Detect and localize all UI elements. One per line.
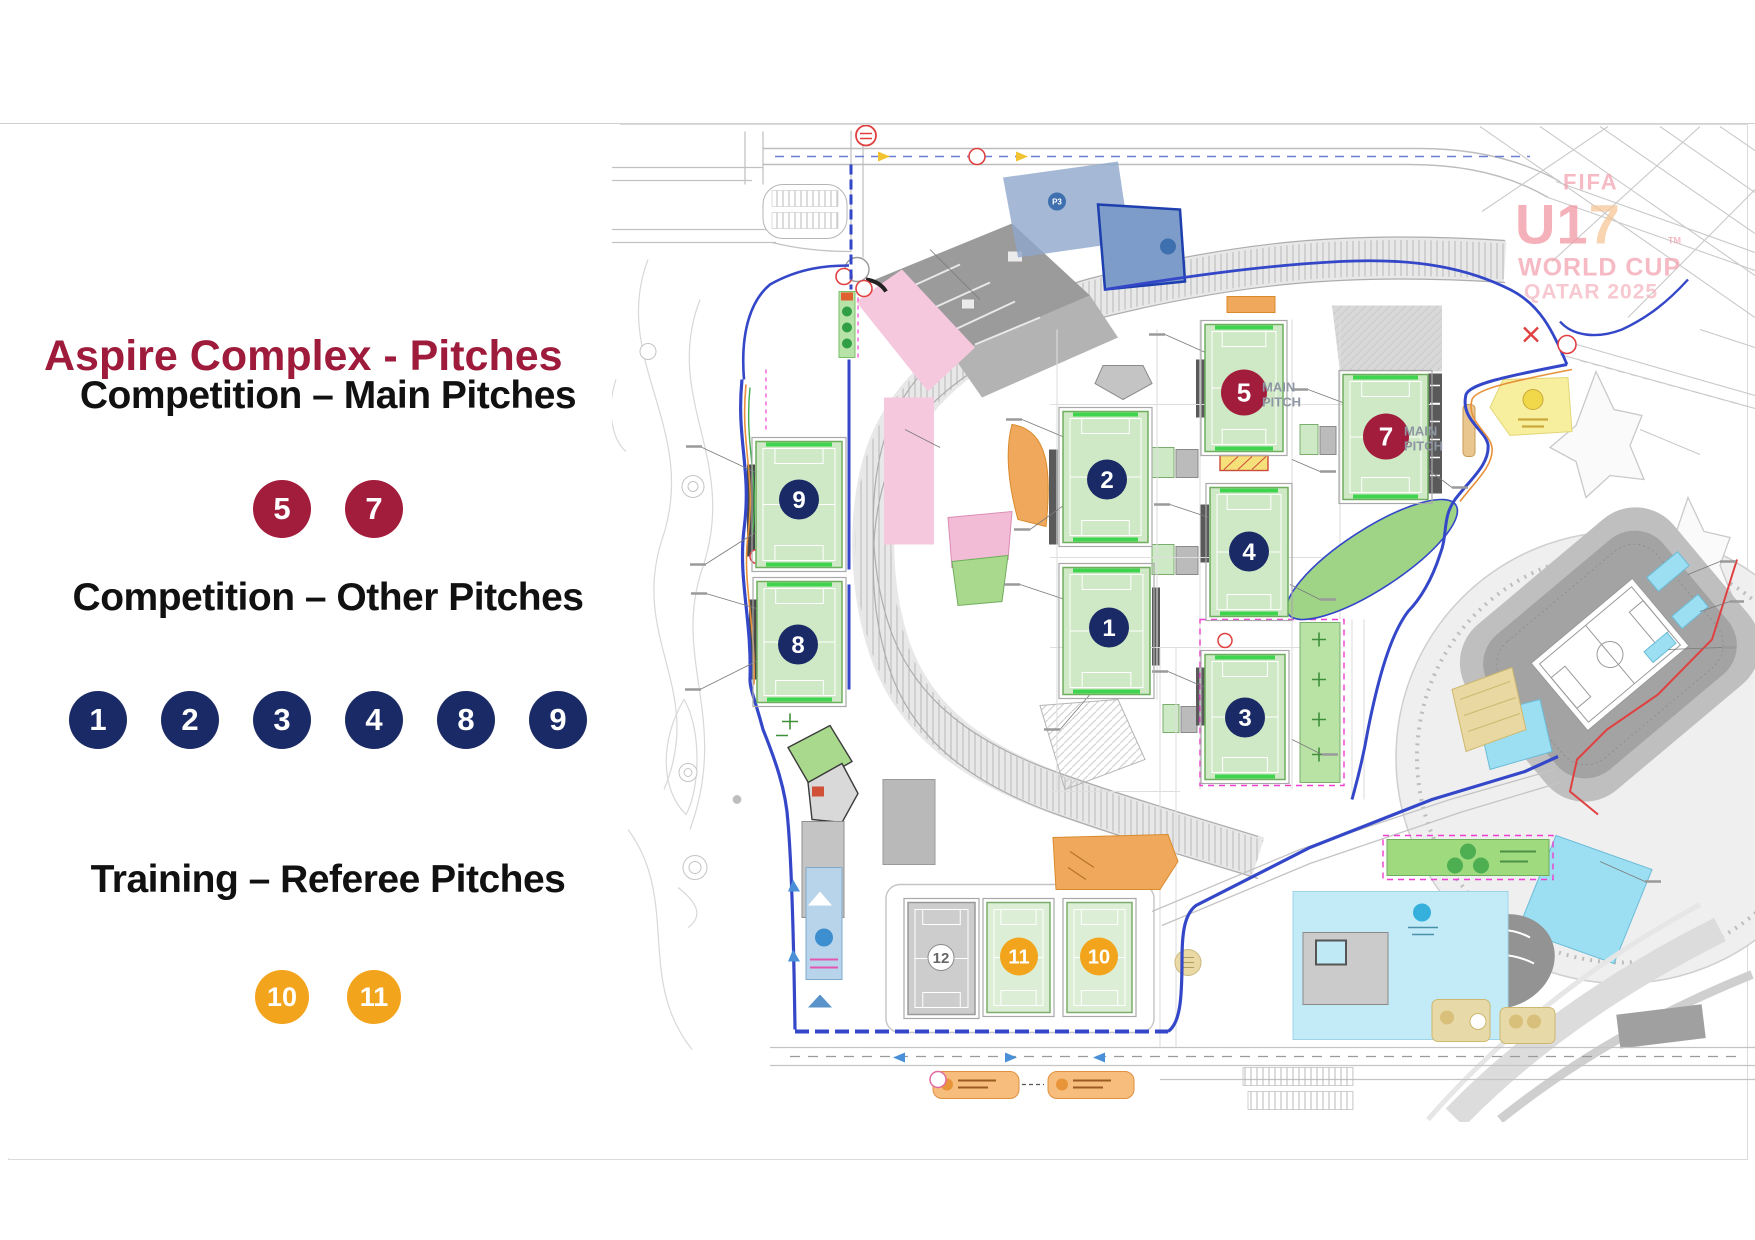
south-road — [770, 1048, 1755, 1110]
p3-label: P3 — [1052, 198, 1062, 207]
road-marker-icon — [930, 1072, 946, 1088]
pitch-1: 1 — [1059, 564, 1154, 699]
pitch-3: 3 — [1201, 651, 1289, 784]
pitch-number-3: 3 — [1238, 705, 1251, 732]
svg-text:TM: TM — [1668, 236, 1681, 246]
svg-text:FIFA: FIFA — [1563, 170, 1619, 195]
slide: { "legend": { "title": "Aspire Complex -… — [0, 0, 1755, 1240]
pitch-11: 11 — [983, 899, 1054, 1017]
north-road — [763, 149, 1560, 198]
info-icon — [815, 929, 833, 947]
legend-badge-4: 4 — [345, 691, 403, 749]
legend-badge-10: 10 — [255, 970, 309, 1024]
svg-text:PITCH: PITCH — [1262, 395, 1301, 410]
pitch-12: 12 — [904, 899, 979, 1019]
road-arrow-icon — [1093, 1053, 1105, 1063]
gray-building — [883, 780, 935, 865]
legend-badge-5: 5 — [253, 480, 311, 538]
badge-row-main: 57 — [8, 480, 648, 538]
svg-text:MAIN: MAIN — [1262, 380, 1295, 395]
section-label-main-pitches: Competition – Main Pitches — [8, 374, 648, 418]
pitch-9: 9 — [752, 438, 846, 572]
pitch-number-5: 5 — [1237, 378, 1251, 408]
road-arrow-icon — [1016, 152, 1028, 162]
pitch-number-9: 9 — [792, 487, 805, 514]
svg-text:WORLD CUP: WORLD CUP — [1518, 254, 1681, 282]
pitch-number-4: 4 — [1242, 539, 1256, 566]
section-label-other-pitches: Competition – Other Pitches — [8, 576, 648, 620]
road-arrow-icon — [878, 152, 890, 162]
south-building — [1616, 1004, 1706, 1048]
road-arrow-icon — [1005, 1053, 1017, 1063]
legend-badge-9: 9 — [529, 691, 587, 749]
pitch-number-1: 1 — [1102, 615, 1115, 642]
pitch-number-11: 11 — [1008, 947, 1029, 969]
plaza-icon — [1523, 390, 1543, 410]
section-label-referee-pitches: Training – Referee Pitches — [8, 858, 648, 902]
badge-row-training: 1011 — [8, 970, 648, 1024]
legend-badge-1: 1 — [69, 691, 127, 749]
road-marker-icon — [969, 149, 985, 165]
pitch-number-8: 8 — [791, 632, 804, 659]
parking-icon — [1160, 239, 1176, 255]
landscape-west — [612, 260, 713, 1050]
pitch-2: 2 — [1059, 408, 1152, 547]
parking-lot-northwest — [763, 185, 847, 239]
svg-text:MAIN: MAIN — [1404, 424, 1437, 439]
pitch-number-2: 2 — [1100, 467, 1113, 494]
legend-badge-8: 8 — [437, 691, 495, 749]
legend-badge-7: 7 — [345, 480, 403, 538]
competitor-strip — [1383, 836, 1553, 880]
svg-text:QATAR 2025: QATAR 2025 — [1524, 281, 1658, 304]
legend-badge-2: 2 — [161, 691, 219, 749]
legend-badge-3: 3 — [253, 691, 311, 749]
metro-icon — [1413, 904, 1431, 922]
pitch-number-7: 7 — [1379, 422, 1393, 452]
pitch-10: 10 — [1063, 899, 1136, 1017]
pitch-number-12: 12 — [933, 950, 950, 967]
pitch-number-10: 10 — [1088, 947, 1110, 969]
pitch-8: 8 — [753, 578, 846, 707]
legend-badge-11: 11 — [347, 970, 401, 1024]
legend-panel: Aspire Complex - Pitches Competition – M… — [8, 124, 620, 1158]
yellow-plaza — [1490, 378, 1572, 436]
fifa-watermark: FIFA U17 TM WORLD CUP QATAR 2025 — [1515, 170, 1681, 304]
tpc-marker-icon — [856, 126, 876, 146]
badge-row-other: 123489 — [8, 691, 648, 749]
svg-text:PITCH: PITCH — [1404, 439, 1443, 454]
site-map: P3 — [612, 125, 1755, 1122]
u17-logo: U17 — [1515, 193, 1621, 256]
pitch-4: 4 — [1206, 484, 1292, 621]
road-arrow-icon — [893, 1053, 905, 1063]
